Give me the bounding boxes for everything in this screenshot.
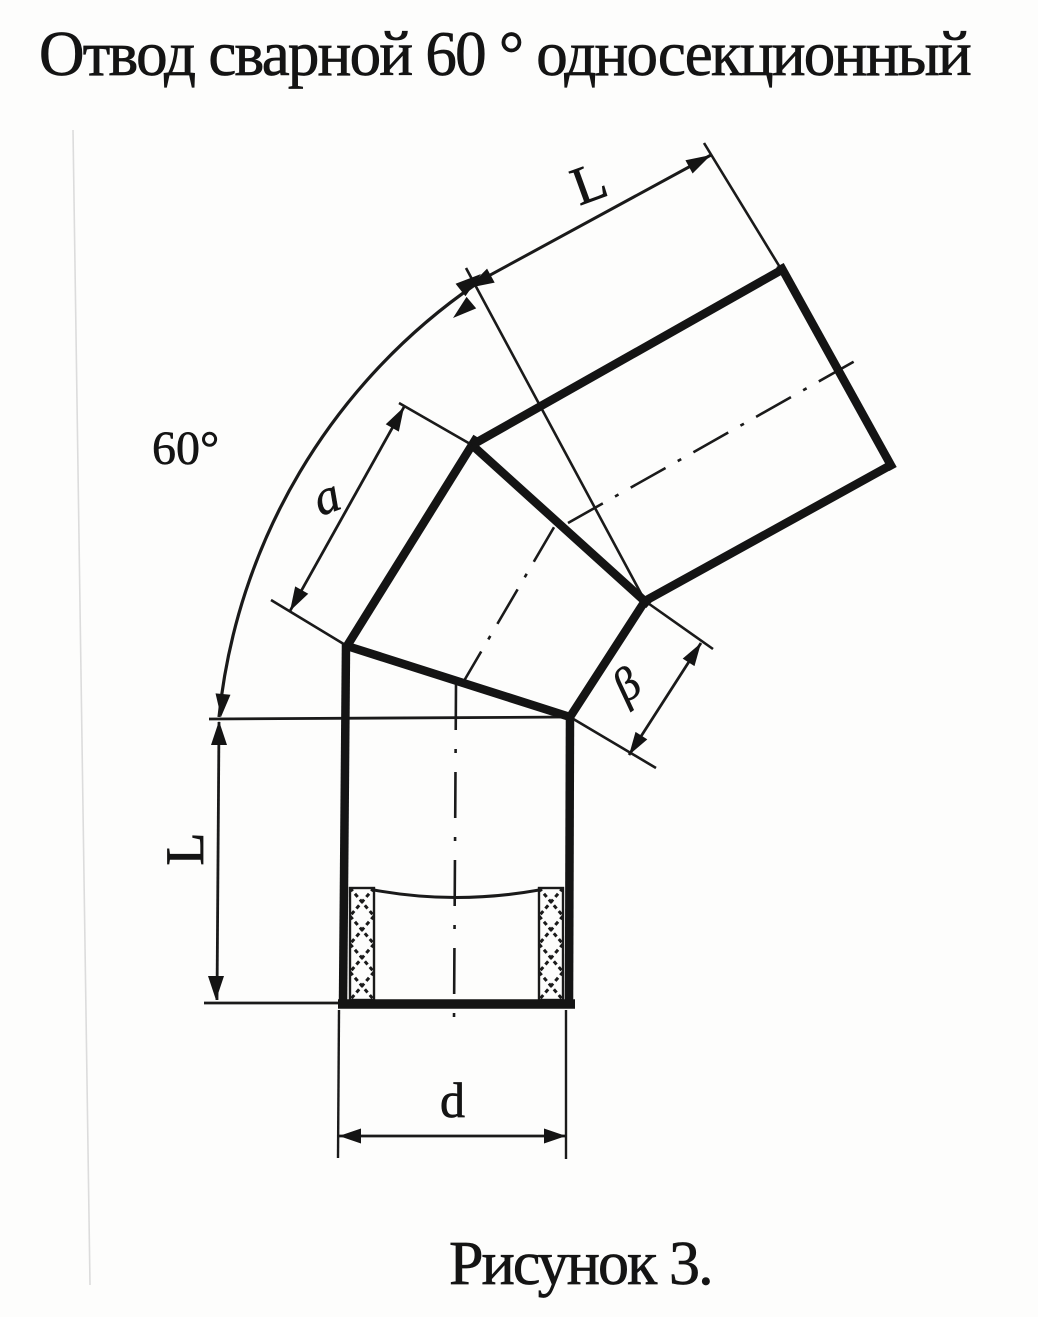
svg-text:β: β <box>601 657 650 713</box>
svg-text:a: a <box>305 465 348 526</box>
svg-text:L: L <box>155 833 215 866</box>
svg-text:Рисунок 3.: Рисунок 3. <box>449 1230 712 1298</box>
svg-text:Отвод сварной 60 ° односекцион: Отвод сварной 60 ° односекционный <box>39 19 971 89</box>
svg-text:d: d <box>440 1072 465 1128</box>
svg-text:60°: 60° <box>152 422 219 475</box>
svg-text:L: L <box>563 149 615 217</box>
